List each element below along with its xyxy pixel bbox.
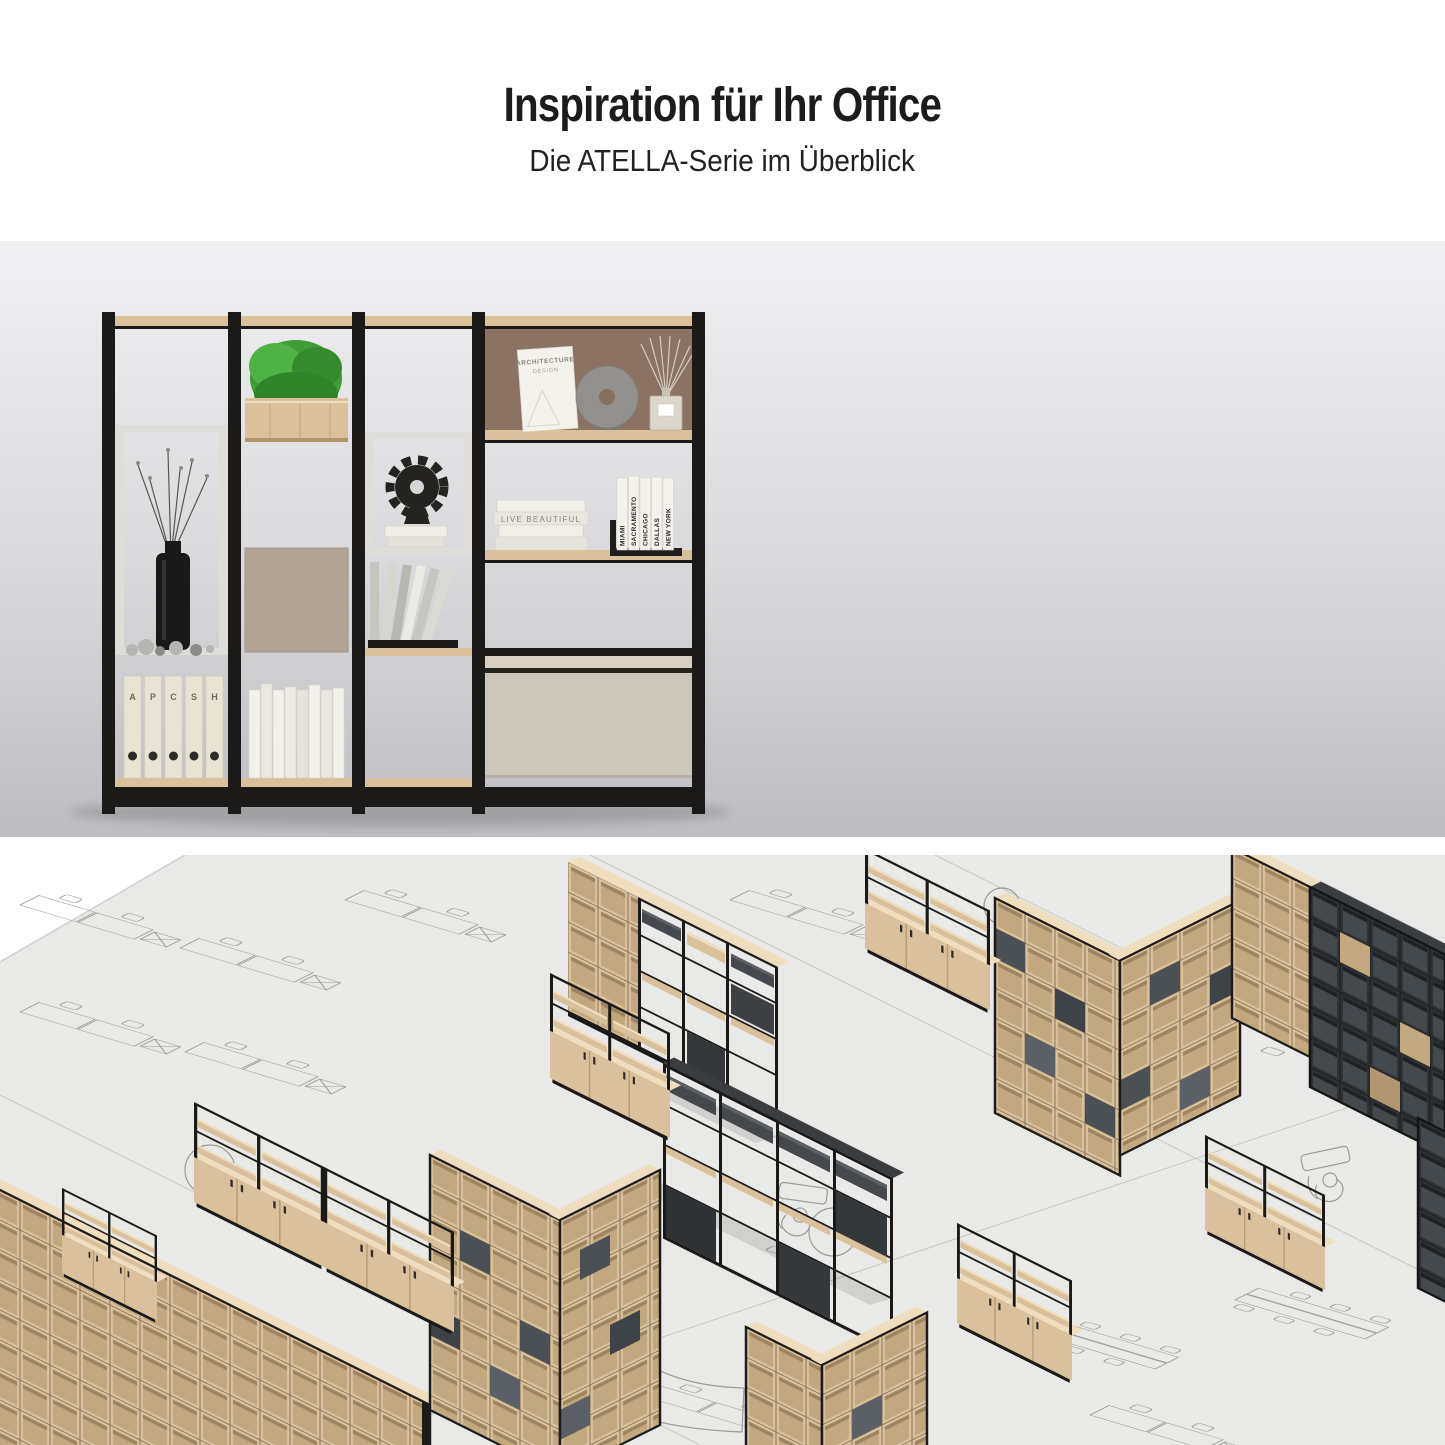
city-books: MIAMI SACRAMENTO CHICAGO DALLAS NEW YORK <box>610 476 682 556</box>
binder-letter: S <box>191 692 197 702</box>
header-section: Inspiration für Ihr Office Die ATELLA-Se… <box>0 0 1445 241</box>
city-book-spine: MIAMI <box>620 525 627 546</box>
book <box>388 537 444 547</box>
vase-neck <box>165 541 181 553</box>
hero-shelf-illustration: A P C S H <box>0 241 1445 837</box>
felt-panel <box>245 548 348 652</box>
floorplan-illustration <box>0 855 1445 1445</box>
book <box>385 526 447 537</box>
binder-letter: A <box>129 692 136 702</box>
black-vase <box>156 553 190 650</box>
city-book-spine: DALLAS <box>654 517 661 546</box>
floorplan-section <box>0 855 1445 1445</box>
hero-product-section: A P C S H <box>0 241 1445 837</box>
page-subtitle: Die ATELLA-Serie im Überblick <box>0 143 1445 179</box>
book-stack-spine-title: LIVE BEAUTIFUL <box>501 515 581 524</box>
binders: A P C S H <box>124 676 223 778</box>
binder-letter: P <box>150 692 156 702</box>
city-book-spine: NEW YORK <box>666 508 673 546</box>
section-divider <box>0 837 1445 855</box>
shelf-column-4: ARCHITECTURE DESIGN <box>485 329 694 778</box>
wood-planter-box <box>245 398 348 442</box>
binder-letter: C <box>170 692 177 702</box>
binder-letter: H <box>211 692 218 702</box>
city-book-spine: CHICAGO <box>643 513 650 546</box>
cabinet <box>485 656 692 778</box>
architecture-book: ARCHITECTURE DESIGN <box>515 346 579 432</box>
marketing-page: { "header": { "title": "Inspiration für … <box>0 0 1445 1445</box>
page-title: Inspiration für Ihr Office <box>0 0 1445 133</box>
city-book-spine: SACRAMENTO <box>631 497 638 546</box>
book-stack <box>494 500 588 550</box>
